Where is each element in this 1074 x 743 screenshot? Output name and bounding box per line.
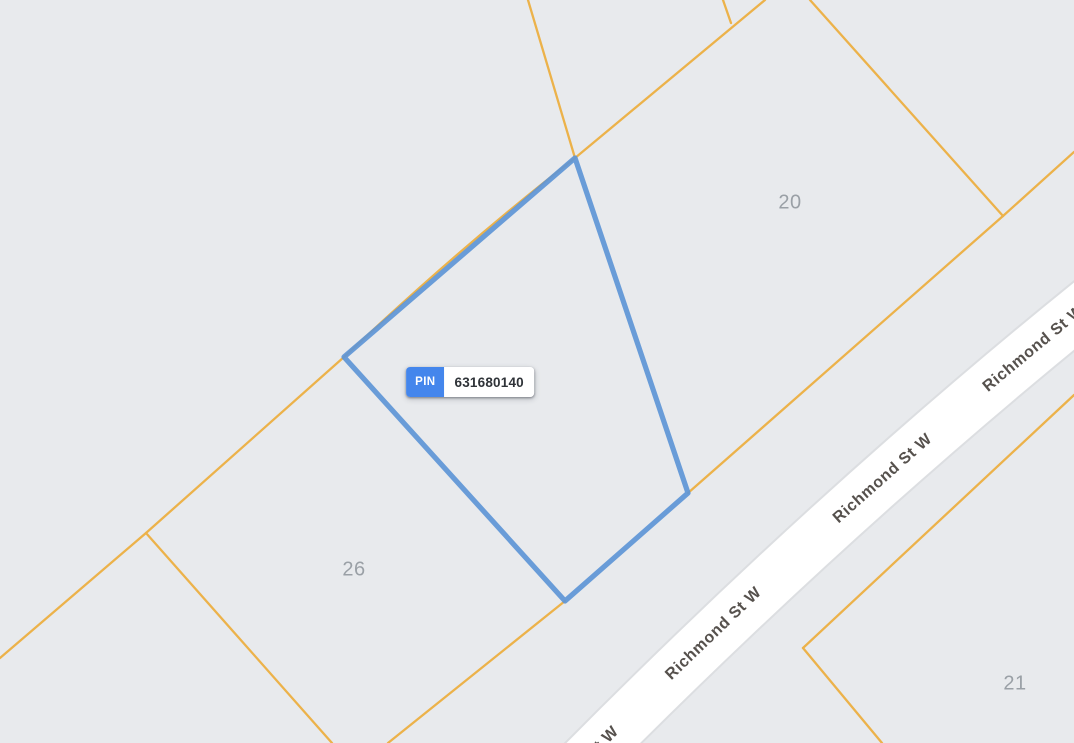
parcel-boundary-line (803, 395, 1074, 648)
pin-value: 631680140 (445, 367, 534, 397)
parcel-boundary-line (344, 158, 575, 357)
parcel-boundary-line (388, 601, 565, 743)
parcel-boundary-line (723, 0, 731, 23)
pin-badge: PIN (406, 367, 444, 397)
parcel-number-label: 21 (1003, 673, 1026, 696)
road-label-richmond-st-w: Richmond St W (662, 584, 765, 684)
parcel-number-label: 26 (342, 559, 365, 582)
parcel-boundary-line (575, 0, 765, 158)
parcel-number-label: 20 (778, 192, 801, 215)
parcel-boundary-line (0, 357, 344, 658)
parcel-boundary-line (803, 648, 882, 743)
map-vector-layer (0, 0, 1074, 743)
pin-tooltip: PIN 631680140 (406, 367, 534, 397)
parcel-boundary-line (528, 0, 575, 158)
parcel-boundary-line (1003, 152, 1074, 216)
road-richmond-st-w (545, 295, 1074, 743)
parcel-boundary-line (810, 0, 1003, 216)
road-label-richmond-st-w: Richmond St W (830, 431, 936, 528)
road-label-richmond-st-w: Richmond St W (980, 302, 1074, 396)
parcel-boundary-line (688, 216, 1003, 493)
road-label-richmond-st-w: Richmond St W (521, 723, 623, 743)
map-canvas[interactable]: Richmond St W Richmond St W Richmond St … (0, 0, 1074, 743)
road-casing (545, 295, 1074, 743)
parcel-boundary-line (146, 533, 332, 743)
